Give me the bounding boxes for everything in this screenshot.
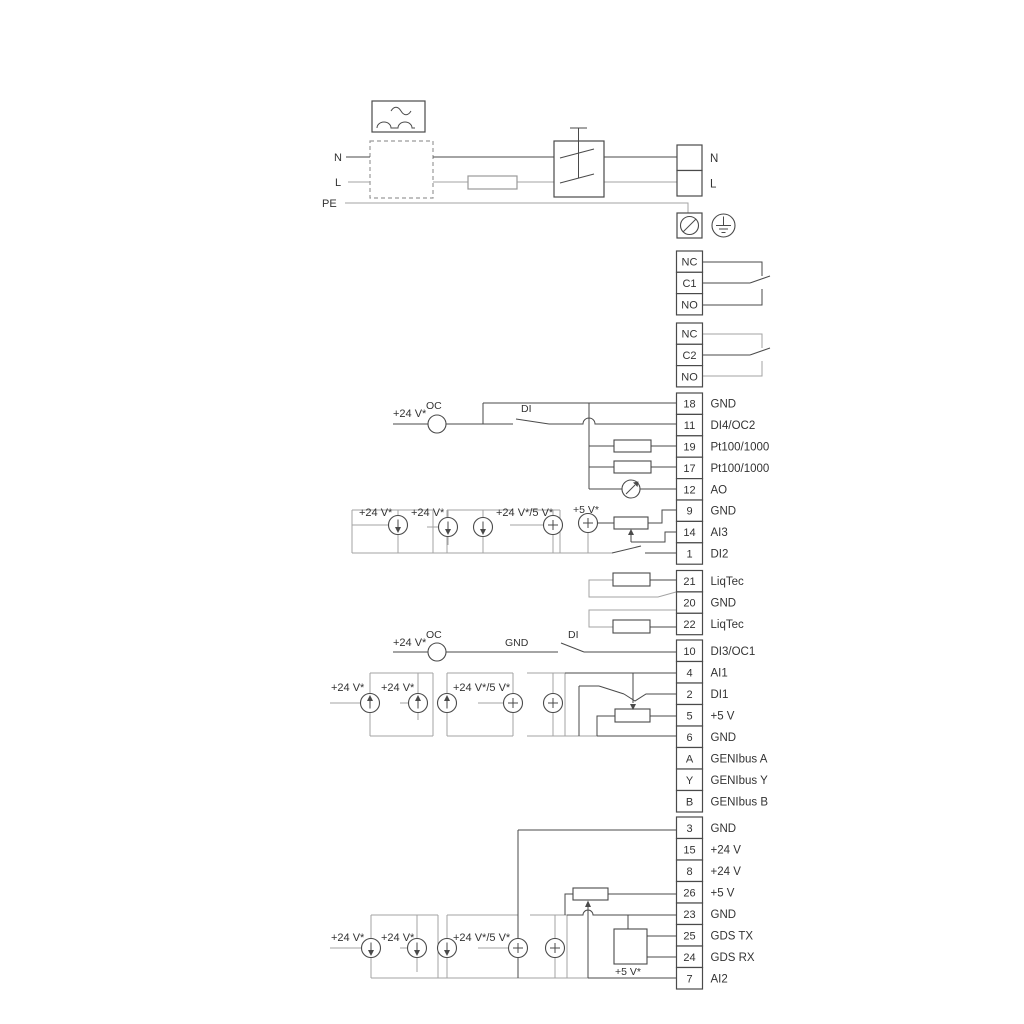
label-oc-di4: OC <box>426 400 442 412</box>
terminal-label-15: +24 V <box>711 844 742 856</box>
terminal-label-12: AO <box>711 484 728 496</box>
di4-switch-blade <box>516 419 549 424</box>
terminal-label-23: GND <box>711 909 737 921</box>
terminal-number-c2: C2 <box>682 350 696 362</box>
terminal-number-14: 14 <box>683 527 695 539</box>
pt100-resistor-1 <box>614 440 651 452</box>
label-24v-di4: +24 V* <box>393 408 427 420</box>
pt100-resistor-2 <box>614 461 651 473</box>
terminal-label-7: AI2 <box>711 973 728 985</box>
terminal-number-25: 25 <box>683 930 695 942</box>
di4-pt100-ao-section: +24 V* OC DI <box>393 400 676 498</box>
terminal-number-26: 26 <box>683 887 695 899</box>
ai3-wiper-arrow <box>628 529 634 535</box>
terminal-label-1: DI2 <box>711 549 729 561</box>
terminal-label-b: GENIbus B <box>711 796 769 808</box>
wiring-diagram: N L PE +24 V* OC DI <box>0 0 1024 1024</box>
current-source-icon <box>439 518 458 537</box>
label-di-di4: DI <box>521 403 532 415</box>
liqtec-sensor-2 <box>613 620 650 633</box>
open-collector-icon <box>428 643 446 661</box>
terminal-number-19: 19 <box>683 442 695 454</box>
label-24v: +24 V* <box>381 682 415 694</box>
terminal-label-6: GND <box>711 732 737 744</box>
terminal-label-24: GDS RX <box>711 952 755 964</box>
voltage-source-icon <box>546 939 565 958</box>
terminal-group-mains: NL <box>677 145 718 196</box>
terminal-number-24: 24 <box>683 952 695 964</box>
wiring-diagram-page: N L PE +24 V* OC DI <box>0 0 1024 1024</box>
label-pe: PE <box>322 198 337 210</box>
terminal-number-b: B <box>686 796 693 808</box>
terminal-group-io2: 10DI3/OC14AI12DI15+5 V6GNDAGENIbus AYGEN… <box>677 640 769 812</box>
terminal-label-y: GENIbus Y <box>711 775 769 787</box>
terminal-label-5: +5 V <box>711 710 735 722</box>
liqtec-terminal-wires <box>650 580 676 627</box>
terminal-number-c1: C1 <box>682 278 696 290</box>
terminal-group-io3: 3GND15+24 V8+24 V26+5 V23GND25GDS TX24GD… <box>677 817 755 989</box>
di2-switch-blade <box>612 546 641 553</box>
terminal-label-9: GND <box>711 506 737 518</box>
terminal-number-12: 12 <box>683 484 695 496</box>
current-source-icon <box>438 694 457 713</box>
terminal-number-20: 20 <box>683 598 695 610</box>
terminal-number-nc: NC <box>682 329 698 341</box>
label-24v-5v: +24 V*/5 V* <box>496 507 554 519</box>
terminal-label-3: GND <box>711 823 737 835</box>
terminal-number-no: NO <box>681 299 698 311</box>
terminal-label-25: GDS TX <box>711 930 754 942</box>
liqtec-sensor-1 <box>613 573 650 586</box>
current-source-icon <box>409 694 428 713</box>
label-24v-di3: +24 V* <box>393 637 427 649</box>
terminal-number-2: 2 <box>686 689 692 701</box>
terminal-number-21: 21 <box>683 576 695 588</box>
ai1-pot-wires <box>565 673 676 736</box>
label-24v: +24 V* <box>381 932 415 944</box>
liqtec-section <box>589 573 676 633</box>
gds-sensor-box <box>614 929 647 964</box>
voltage-source-icon <box>544 694 563 713</box>
terminal-label-22: LiqTec <box>711 619 744 631</box>
terminal-label-18: GND <box>711 399 737 411</box>
terminal-number-no: NO <box>681 371 698 383</box>
terminal-label-19: Pt100/1000 <box>711 442 770 454</box>
terminal-cell-l <box>677 171 702 197</box>
terminal-label-26: +5 V <box>711 887 735 899</box>
current-source-icon <box>361 694 380 713</box>
terminal-label-n: N <box>710 153 718 165</box>
wire-pe <box>345 203 688 213</box>
label-24v-5v: +24 V*/5 V* <box>453 932 511 944</box>
terminal-group-relay1: NCC1NO <box>677 251 703 315</box>
terminal-number-17: 17 <box>683 463 695 475</box>
voltage-source-icon <box>504 694 523 713</box>
di1-switch-blade <box>599 686 624 694</box>
label-24v: +24 V* <box>411 507 445 519</box>
relay1-wires <box>703 262 762 305</box>
di3-switch-blade <box>561 643 584 652</box>
relay1-contact-blade <box>750 276 770 283</box>
label-24v: +24 V* <box>331 682 365 694</box>
filter-box <box>370 141 433 198</box>
ai1-di1-section: +24 V* +24 V* +24 V*/5 V* <box>330 673 676 736</box>
label-24v-5v: +24 V*/5 V* <box>453 682 511 694</box>
terminal-label-10: DI3/OC1 <box>711 646 756 658</box>
power-input-section: N L PE <box>322 101 735 238</box>
label-gnd-di3: GND <box>505 637 529 649</box>
label-l-left: L <box>335 177 341 189</box>
terminal-label-21: LiqTec <box>711 576 744 588</box>
gds-ai2-section: +24 V* +24 V* +24 V*/5 V* +5 V* <box>330 830 676 978</box>
di3-oc1-section: +24 V* OC GND DI <box>393 629 676 661</box>
terminal-blocks: NLNCC1NONCC2NO18GND11DI4/OC219Pt100/1000… <box>677 145 770 989</box>
terminal-number-18: 18 <box>683 399 695 411</box>
terminal-number-5: 5 <box>686 710 692 722</box>
terminal-number-23: 23 <box>683 909 695 921</box>
label-5v: +5 V* <box>573 504 599 516</box>
terminal-number-8: 8 <box>686 866 692 878</box>
voltage-source-icon <box>579 514 598 533</box>
gds-section-wires <box>518 830 676 978</box>
terminal-number-nc: NC <box>682 257 698 269</box>
ai2-potentiometer <box>573 888 608 900</box>
terminal-group-io1: 18GND11DI4/OC219Pt100/100017Pt100/100012… <box>677 393 770 564</box>
terminal-number-22: 22 <box>683 619 695 631</box>
ai3-potentiometer <box>614 517 648 529</box>
terminal-label-20: GND <box>711 598 737 610</box>
terminal-number-15: 15 <box>683 844 695 856</box>
open-collector-icon <box>428 415 446 433</box>
label-n-left: N <box>334 152 342 164</box>
label-24v: +24 V* <box>359 507 393 519</box>
terminal-number-3: 3 <box>686 823 692 835</box>
relay2-contact-blade <box>750 348 770 355</box>
terminal-number-4: 4 <box>686 667 692 679</box>
terminal-number-y: Y <box>686 775 694 787</box>
label-di-di3: DI <box>568 629 579 641</box>
terminal-group-relay2: NCC2NO <box>677 323 703 387</box>
terminal-label-a: GENIbus A <box>711 753 768 765</box>
relay1-section <box>703 262 770 305</box>
voltage-source-icon <box>509 939 528 958</box>
current-source-icon <box>362 939 381 958</box>
terminal-cell-n <box>677 145 702 171</box>
ai2-wiper-arrow <box>585 901 591 908</box>
terminal-label-17: Pt100/1000 <box>711 463 770 475</box>
terminal-label-11: DI4/OC2 <box>711 420 756 432</box>
terminal-label-8: +24 V <box>711 866 742 878</box>
relay2-section <box>703 334 770 376</box>
terminal-number-1: 1 <box>686 549 692 561</box>
terminal-number-6: 6 <box>686 732 692 744</box>
terminal-label-2: DI1 <box>711 689 729 701</box>
ai3-di2-section: +24 V* +24 V* +24 V*/5 V* +5 V* <box>352 504 676 553</box>
label-24v: +24 V* <box>331 932 365 944</box>
terminal-label-14: AI3 <box>711 527 728 539</box>
fuse <box>468 176 517 189</box>
terminal-number-10: 10 <box>683 646 695 658</box>
terminal-group-liqtec: 21LiqTec20GND22LiqTec <box>677 571 744 635</box>
terminal-number-11: 11 <box>684 420 695 432</box>
label-5v-gds: +5 V* <box>615 966 641 978</box>
terminal-label-4: AI1 <box>711 667 728 679</box>
current-source-icon <box>474 518 493 537</box>
ai1-potentiometer <box>615 709 650 722</box>
terminal-number-7: 7 <box>686 973 692 985</box>
terminal-label-l: L <box>710 178 717 190</box>
terminal-number-a: A <box>686 753 694 765</box>
terminal-number-9: 9 <box>686 506 692 518</box>
label-oc-di3: OC <box>426 629 442 641</box>
